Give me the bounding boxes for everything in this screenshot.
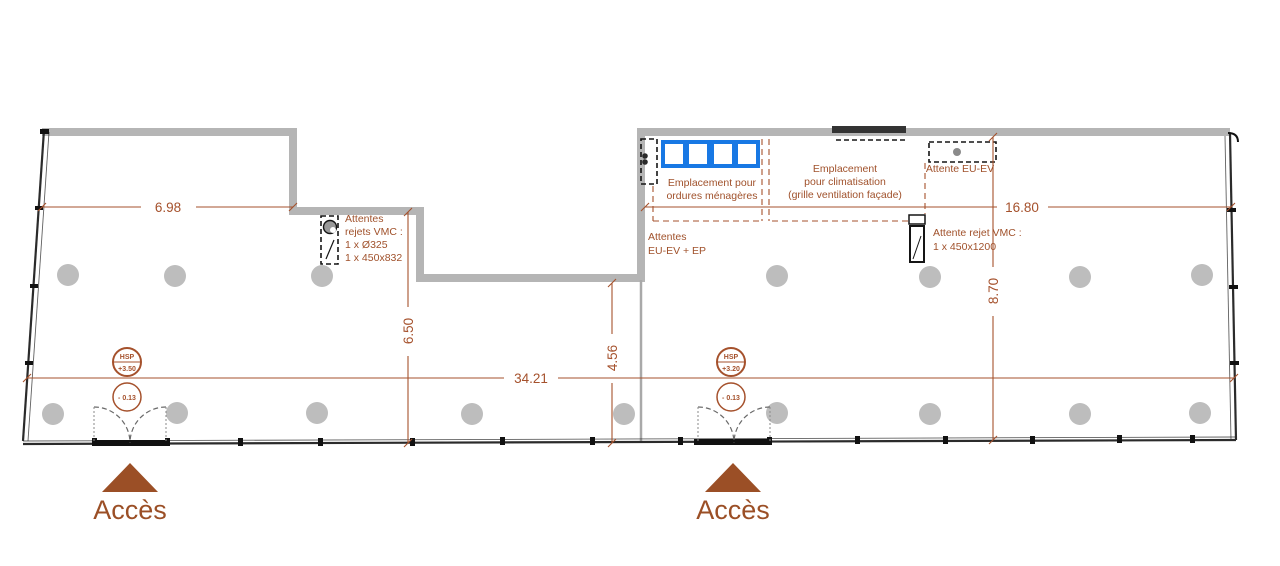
svg-text:Attentes: Attentes	[648, 231, 687, 243]
svg-text:(grille ventilation façade): (grille ventilation façade)	[788, 189, 902, 201]
access-right-marker: Accès	[696, 463, 770, 525]
drain-point-icon	[953, 148, 961, 156]
svg-text:EU-EV + EP: EU-EV + EP	[648, 245, 706, 257]
bin	[663, 142, 685, 166]
dim-top-left: 6.98	[155, 200, 181, 215]
entrance-doors	[94, 407, 770, 443]
column	[166, 402, 188, 424]
note-attentes-eu-ev-ep: Attentes EU-EV + EP	[648, 231, 706, 257]
attente-eu-ev-box	[929, 142, 996, 162]
dim-top-right: 16.80	[1005, 200, 1039, 215]
column	[57, 264, 79, 286]
column	[1069, 266, 1091, 288]
door-right	[698, 407, 770, 443]
dim-left-depth: 6.50	[401, 318, 416, 344]
column	[766, 265, 788, 287]
access-left-marker: Accès	[93, 463, 167, 525]
columns	[42, 264, 1213, 425]
svg-text:Emplacement: Emplacement	[813, 163, 877, 175]
dim-bottom: 34.21	[514, 371, 548, 386]
svg-text:1 x 450x832: 1 x 450x832	[345, 252, 402, 264]
column	[461, 403, 483, 425]
bin	[687, 142, 709, 166]
svg-text:Attente EU-EV: Attente EU-EV	[926, 163, 994, 175]
hsp-value: +3.20	[722, 366, 740, 373]
svg-text:pour climatisation: pour climatisation	[804, 176, 886, 188]
column	[1069, 403, 1091, 425]
svg-text:Emplacement pour: Emplacement pour	[668, 177, 757, 189]
right-glazed-wall	[1225, 133, 1239, 440]
hsp-label: HSP	[120, 354, 135, 361]
dim-right-depth: 8.70	[986, 278, 1001, 304]
access-arrow-icon	[102, 463, 158, 492]
access-left-label: Accès	[93, 495, 167, 525]
svg-text:1 x Ø325: 1 x Ø325	[345, 239, 388, 251]
hsp-value: +3.50	[118, 366, 136, 373]
hatch-symbol-icon	[642, 153, 648, 159]
column	[42, 403, 64, 425]
hatch-symbol-icon	[642, 159, 648, 165]
door-sill-right	[694, 439, 772, 445]
svg-text:Attente rejet VMC :: Attente rejet VMC :	[933, 227, 1022, 239]
left-glazed-wall	[23, 129, 49, 441]
svg-text:1 x 450x1200: 1 x 450x1200	[933, 241, 996, 253]
column	[164, 265, 186, 287]
column	[919, 266, 941, 288]
column	[919, 403, 941, 425]
dimension-lines: 6.98 16.80 34.21 6.50 4.56 8.70	[23, 133, 1238, 447]
bin	[712, 142, 734, 166]
column	[613, 403, 635, 425]
door-sill-left	[92, 440, 170, 446]
column	[311, 265, 333, 287]
note-attente-eu-ev: Attente EU-EV	[926, 163, 994, 175]
door-left	[94, 407, 166, 443]
floor-plan: 6.98 16.80 34.21 6.50 4.56 8.70	[0, 0, 1280, 566]
level-markers: HSP +3.50 - 0.13 HSP +3.20 - 0.13	[113, 348, 745, 411]
svg-text:Attentes: Attentes	[345, 213, 384, 225]
column	[1191, 264, 1213, 286]
dim-mid-depth: 4.56	[605, 345, 620, 371]
floor-level: - 0.13	[118, 395, 136, 402]
bin	[736, 142, 758, 166]
access-right-label: Accès	[696, 495, 770, 525]
access-arrow-icon	[705, 463, 761, 492]
note-climatisation: Emplacement pour climatisation (grille v…	[788, 163, 902, 201]
svg-text:ordures ménagères: ordures ménagères	[666, 190, 757, 202]
column	[766, 402, 788, 424]
note-vmc-left: Attentes rejets VMC : 1 x Ø325 1 x 450x8…	[345, 213, 403, 264]
note-ordures: Emplacement pour ordures ménagères	[666, 177, 757, 202]
gray-wall-outline	[42, 132, 1230, 278]
facade-grille	[832, 126, 906, 133]
vmc-fixture-right	[909, 215, 925, 262]
bottom-glazed-wall	[23, 435, 1236, 446]
hsp-marker-right: HSP +3.20 - 0.13	[717, 348, 745, 411]
hsp-label: HSP	[724, 354, 739, 361]
waste-bins	[663, 142, 758, 166]
hsp-marker-left: HSP +3.50 - 0.13	[113, 348, 141, 411]
svg-text:rejets VMC :: rejets VMC :	[345, 226, 403, 238]
column	[1189, 402, 1211, 424]
column	[306, 402, 328, 424]
floor-level: - 0.13	[722, 395, 740, 402]
exterior-walls	[23, 129, 1239, 446]
note-vmc-right: Attente rejet VMC : 1 x 450x1200	[933, 227, 1022, 253]
vmc-fixture-left	[321, 216, 338, 264]
